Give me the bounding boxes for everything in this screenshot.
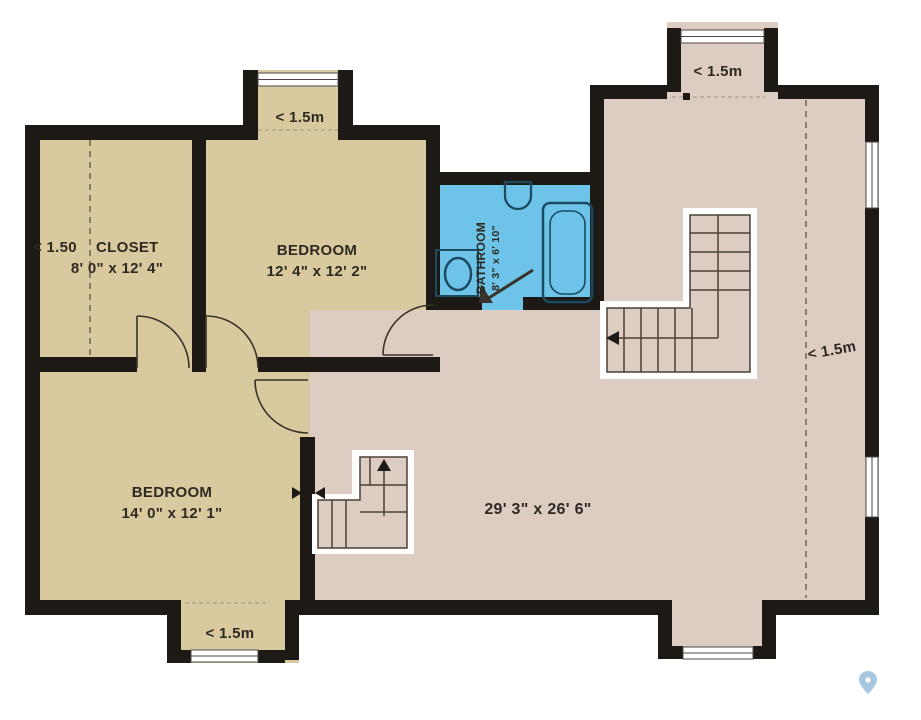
wall-bathroom-bottom-left xyxy=(426,297,482,310)
wall-bay-tr-right xyxy=(764,28,778,92)
main-room-dims: 29' 3" x 26' 6" xyxy=(484,501,591,518)
wall-bottom-left xyxy=(25,600,167,615)
wall-main-top-right xyxy=(778,85,879,99)
bedroom-top-name: BEDROOM xyxy=(277,242,357,259)
floor-plan-drawing: [data-name="main-stair-body"],[data-name… xyxy=(0,0,921,720)
bedroom-bottom-dims: 14' 0" x 12' 1" xyxy=(122,505,223,522)
wall-bay-tl-left xyxy=(243,70,258,140)
tick-top-bay xyxy=(683,93,690,100)
window-label-bottom: < 1.5m xyxy=(206,625,255,642)
closet-ceiling-label: < 1.50 xyxy=(33,239,77,256)
window-label-top-left: < 1.5m xyxy=(276,109,325,126)
wall-bay-bl-stub-right xyxy=(258,650,285,663)
bedroom-top-dims: 12' 4" x 12' 2" xyxy=(267,263,368,280)
bedroom-bottom-name: BEDROOM xyxy=(132,484,212,501)
wall-bay-br-stub-right xyxy=(753,646,776,659)
floor-plan: [data-name="main-stair-body"],[data-name… xyxy=(0,0,921,720)
wall-bathroom-left xyxy=(426,185,440,303)
window-label-top-right: < 1.5m xyxy=(694,63,743,80)
wall-bottom-center xyxy=(299,600,658,615)
bathroom-name: BATHROOM xyxy=(474,222,488,294)
wall-mid-horizontal-1 xyxy=(25,357,137,372)
wall-right-1 xyxy=(865,85,879,142)
wall-bottom-right xyxy=(776,600,879,615)
wall-bay-br-stub-left xyxy=(658,646,683,659)
wall-top-closet xyxy=(25,125,243,140)
wall-bay-bl-stub-left xyxy=(167,650,191,663)
bathroom-dims: 8' 3" x 6' 10" xyxy=(490,225,502,291)
wall-closet-bedroom-divider xyxy=(192,140,206,372)
wall-right-2 xyxy=(865,208,879,457)
wall-bay-tl-right xyxy=(338,70,353,140)
closet-name: CLOSET xyxy=(96,239,159,256)
wall-main-top-left xyxy=(590,85,667,99)
wall-mid-horizontal-2 xyxy=(192,357,206,372)
closet-dims: 8' 0" x 12' 4" xyxy=(71,260,163,277)
location-pin-icon[interactable] xyxy=(859,671,877,694)
wall-bay-bl-right xyxy=(285,600,299,660)
wall-bay-tr-left xyxy=(667,28,681,92)
